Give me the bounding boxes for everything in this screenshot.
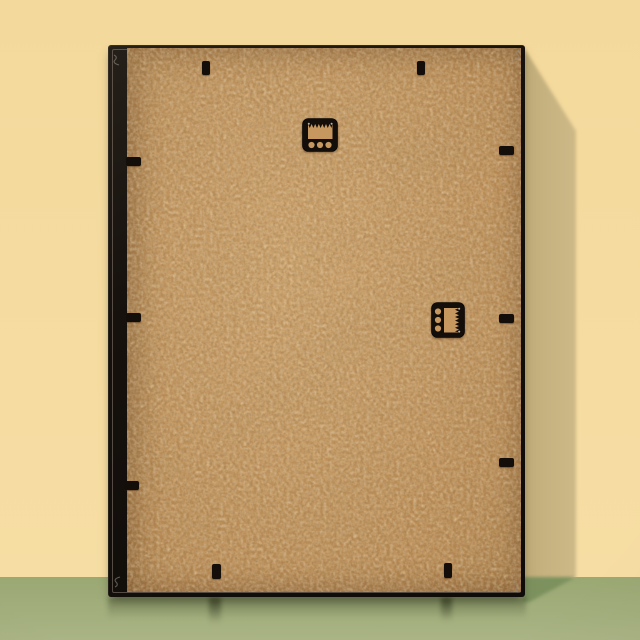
sawtooth-hanger-horizontal [302,118,338,152]
corner-joint-mark-tl [111,53,127,67]
retainer-tab-right-3 [499,458,514,467]
retainer-tab-top-2 [417,61,425,75]
sawtooth-hanger-vertical [430,302,466,338]
photo-back-of-picture-frame [0,0,640,640]
retainer-tab-left-2 [126,313,141,322]
retainer-tab-left-3 [124,481,139,490]
retainer-tab-bottom-2 [444,563,452,578]
retainer-tab-left-1 [126,157,141,166]
retainer-tab-right-1 [499,146,514,155]
retainer-tab-bottom-1 [212,564,221,579]
corner-joint-mark-tr [506,48,522,62]
retainer-tab-right-2 [499,314,514,323]
corner-joint-mark-br [505,580,521,594]
corner-joint-mark-bl [112,575,128,589]
retainer-tab-top-1 [202,61,210,75]
